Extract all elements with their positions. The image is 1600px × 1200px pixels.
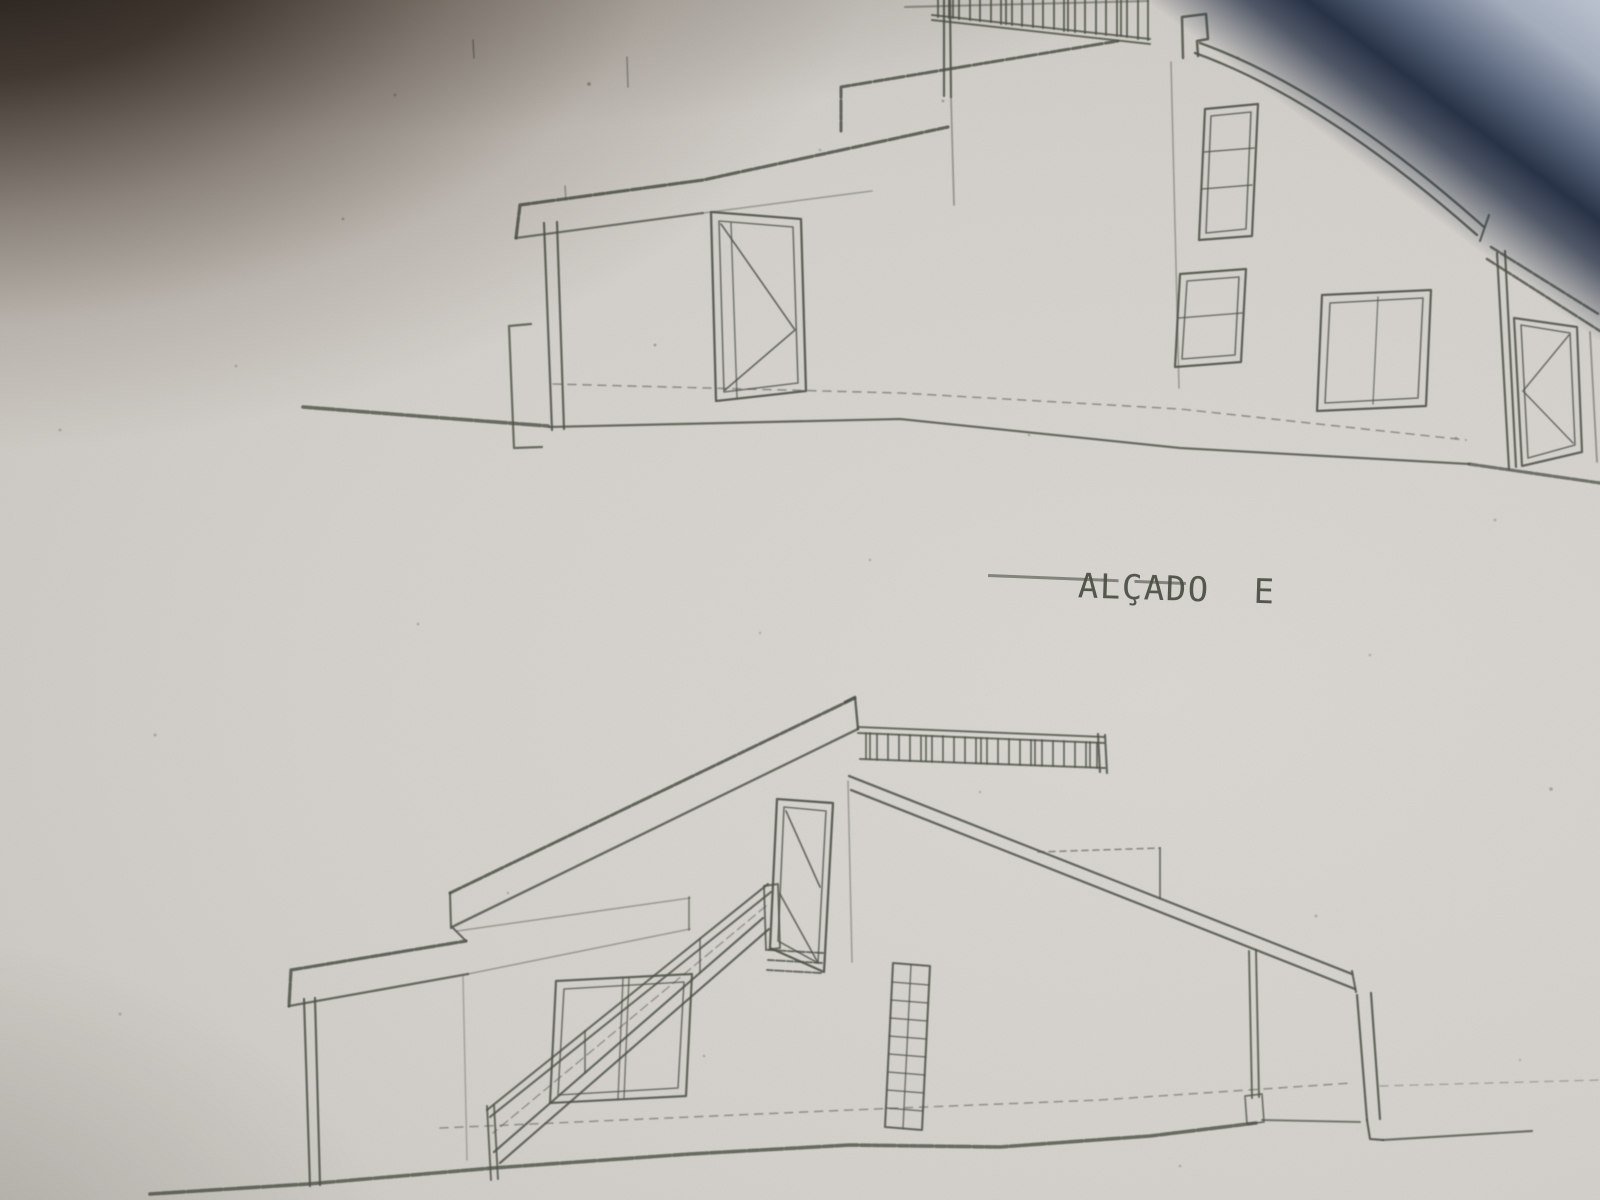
- photographed-blueprint: ALÇADO E: [0, 0, 1600, 1200]
- drawing-title-text: ALÇADO E: [1077, 566, 1276, 612]
- elevation-linework: [0, 0, 1600, 1200]
- drawing-title: ALÇADO E: [988, 524, 1277, 653]
